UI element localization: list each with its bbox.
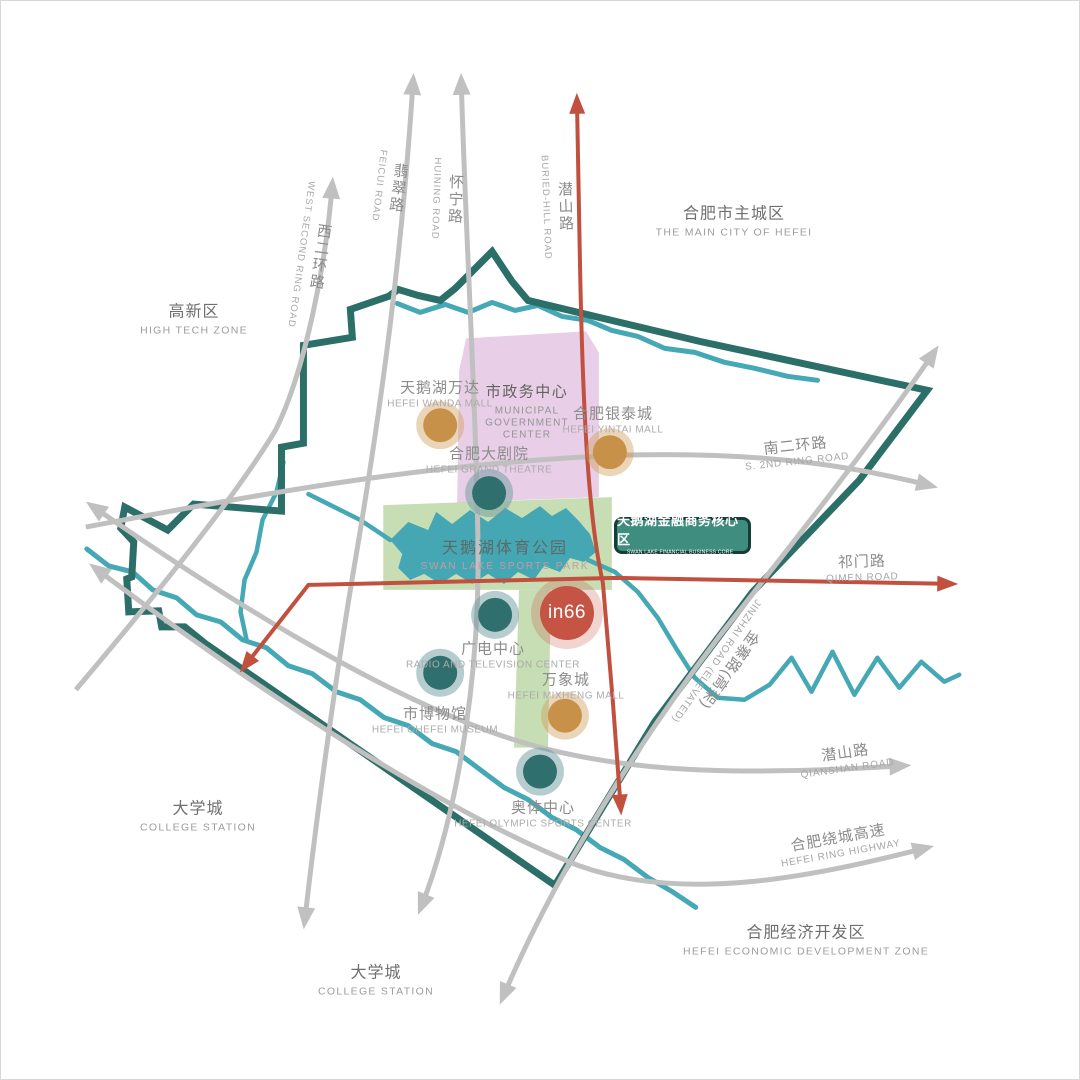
region-en: COLLEGE STATION xyxy=(140,822,256,834)
road-cn: 祁门路 xyxy=(825,549,898,573)
landmark-cn: 合肥大剧院 xyxy=(426,443,552,464)
region-en: HEFEI ECONOMIC DEVELOPMENT ZONE xyxy=(683,946,929,958)
road-label-huining: 怀宁路 HUINING ROAD xyxy=(429,157,467,240)
road-cn: 潜山路 xyxy=(553,154,578,260)
region-en: HIGH TECH ZONE xyxy=(140,325,248,337)
road-en: BURIED-HILL ROAD xyxy=(539,155,554,260)
area-en-line: MUNICIPAL xyxy=(485,406,569,418)
region-cn: 高新区 xyxy=(140,298,248,322)
area-cn: 市政务中心 xyxy=(485,381,569,402)
region-economic-development-zone: 合肥经济开发区 HEFEI ECONOMIC DEVELOPMENT ZONE xyxy=(683,919,929,958)
west-stream xyxy=(241,462,284,640)
core-area-badge: 天鹅湖金融商务核心区 SWAN LAKE FINANCIAL BUSINESS … xyxy=(614,517,751,554)
landmark-label-radio-tv: 广电中心 RADIO AND TELEVISION CENTER xyxy=(406,638,580,671)
area-label-sports-park: 天鹅湖体育公园 SWAN LAKE SPORTS PARK xyxy=(421,534,590,572)
road-label-qimen: 祁门路 QIMEN ROAD xyxy=(825,549,899,585)
landmark-label-wanda: 天鹅湖万达 HEFEI WANDA MALL xyxy=(387,377,492,410)
landmark-en: HEFEI MIXHENG MALL xyxy=(508,691,625,702)
landmark-cn: 奥体中心 xyxy=(454,797,632,818)
area-label-government-center: 市政务中心 MUNICIPAL GOVERNMENT CENTER xyxy=(485,381,569,442)
landmark-circle-grand-theatre xyxy=(465,469,513,517)
region-en: COLLEGE STATION xyxy=(318,986,434,998)
landmark-circle-olympic xyxy=(516,748,564,796)
landmark-cn: 合肥银泰城 xyxy=(563,403,664,424)
landmark-cn: 万象城 xyxy=(508,669,625,690)
landmark-en: HEFEI WANDA MALL xyxy=(387,399,492,410)
area-en-line: CENTER xyxy=(485,430,569,442)
landmark-cn: 天鹅湖万达 xyxy=(387,377,492,398)
region-main-city: 合肥市主城区 THE MAIN CITY OF HEFEI xyxy=(656,200,813,239)
landmark-cn: 市博物馆 xyxy=(372,703,498,724)
in66-marker: in66 xyxy=(540,586,594,640)
road-label-buried-hill: 潜山路 BURIED-HILL ROAD xyxy=(539,154,578,260)
area-en-line: GOVERNMENT xyxy=(485,418,569,430)
landmark-label-mixc: 万象城 HEFEI MIXHENG MALL xyxy=(508,669,625,702)
region-high-tech-zone: 高新区 HIGH TECH ZONE xyxy=(140,298,248,337)
landmark-label-grand-theatre: 合肥大剧院 HEFEI GRAND THEATRE xyxy=(426,443,552,476)
road-cn: 怀宁路 xyxy=(443,158,467,241)
region-cn: 大学城 xyxy=(140,795,256,819)
region-en: THE MAIN CITY OF HEFEI xyxy=(656,227,813,239)
badge-en: SWAN LAKE FINANCIAL BUSINESS CORE AREA xyxy=(627,550,738,560)
landmark-circle-radio-tv xyxy=(471,591,519,639)
landmark-label-olympic: 奥体中心 HEFEI OLYMPIC SPORTS CENTER xyxy=(454,797,632,830)
landmark-en: HEFEI YINTAI MALL xyxy=(563,425,664,436)
lake-inlet-stream xyxy=(308,494,390,540)
landmark-label-museum: 市博物馆 HEFEI OHEFEI MUSEUM xyxy=(372,703,498,736)
in66-label: in66 xyxy=(548,602,586,624)
landmark-en: HEFEI OHEFEI MUSEUM xyxy=(372,725,498,736)
landmark-cn: 广电中心 xyxy=(406,638,580,659)
region-cn: 合肥市主城区 xyxy=(656,200,813,224)
area-en: SWAN LAKE SPORTS PARK xyxy=(421,561,590,572)
region-college-station-south: 大学城 COLLEGE STATION xyxy=(318,959,434,998)
area-cn: 天鹅湖体育公园 xyxy=(421,534,590,558)
map-canvas: 高新区 HIGH TECH ZONE 合肥市主城区 THE MAIN CITY … xyxy=(0,0,1080,1080)
badge-cn: 天鹅湖金融商务核心区 xyxy=(617,510,748,548)
region-college-station-west: 大学城 COLLEGE STATION xyxy=(140,795,256,834)
road-en: HUINING ROAD xyxy=(429,157,443,240)
landmark-en: HEFEI OLYMPIC SPORTS CENTER xyxy=(454,819,632,830)
landmark-en: HEFEI GRAND THEATRE xyxy=(426,465,552,476)
region-cn: 大学城 xyxy=(318,959,434,983)
region-cn: 合肥经济开发区 xyxy=(683,919,929,943)
landmark-label-yintai: 合肥银泰城 HEFEI YINTAI MALL xyxy=(563,403,664,436)
